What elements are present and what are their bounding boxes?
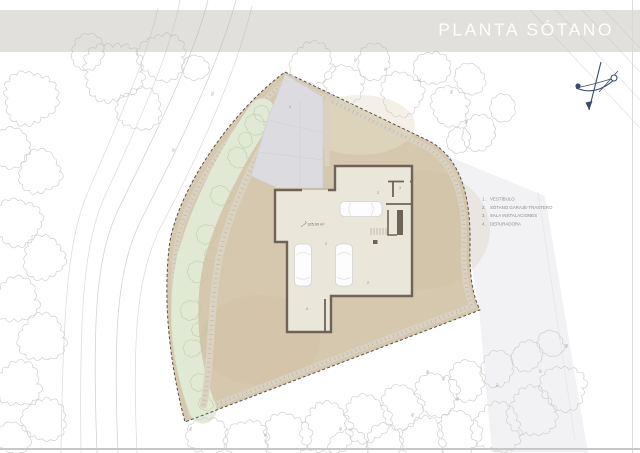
elevation-label: 86 — [410, 412, 415, 417]
elevation-label: 93 — [210, 91, 215, 96]
legend-item-number: 2. — [482, 205, 486, 210]
room-number: 3 — [399, 186, 401, 190]
elevation-label: 86 — [425, 369, 430, 374]
area-label-text: 325.00 m² — [308, 223, 326, 227]
room-number: 2 — [367, 281, 369, 285]
legend-item-label: VESTÍBULO — [490, 197, 515, 202]
tree-icon — [23, 235, 66, 281]
column — [373, 240, 378, 244]
tree-icon — [0, 359, 43, 405]
elevation-label: 86 — [455, 396, 460, 401]
car — [295, 244, 312, 286]
legend-item-number: 1. — [482, 197, 486, 202]
tree-icon — [0, 126, 30, 169]
elevation-label: 85 — [338, 426, 343, 431]
tree-icon — [462, 114, 496, 152]
room-number: 1 — [289, 105, 291, 109]
tree-icon — [489, 94, 515, 123]
sheet-bottom-edge — [0, 448, 640, 450]
legend-item-number: 3. — [482, 213, 486, 218]
legend-item-label: DEPURADORA — [490, 221, 521, 226]
car — [336, 244, 353, 286]
page-title: PLANTA SÓTANO — [438, 20, 614, 41]
elevation-label: 90 — [464, 119, 469, 124]
header-band: PLANTA SÓTANO — [0, 10, 640, 52]
tree-icon — [446, 127, 470, 153]
site-plan-canvas: 9291919090939284858586868686878788 — [0, 0, 640, 453]
tree-icon — [181, 55, 209, 81]
tree-icon — [449, 359, 486, 402]
room-number: 2 — [325, 242, 327, 246]
plan-sheet: 9291919090939284858586868686878788 — [0, 0, 640, 453]
tree-icon — [20, 397, 67, 441]
elevation-label: 91 — [383, 66, 388, 71]
elevation-label: 90 — [449, 89, 454, 94]
legend-item-label: SALA INSTALACIONES — [490, 213, 537, 218]
sheet-right-edge — [632, 0, 633, 453]
elevation-label: 86 — [441, 376, 446, 381]
elevation-label: 84 — [188, 426, 193, 431]
room-number: 2 — [377, 191, 379, 195]
tree-icon — [0, 198, 44, 248]
legend-item-number: 4. — [482, 221, 486, 226]
car — [340, 202, 382, 217]
legend-item-label: SÓTANO GARAJE-TRASTERO — [490, 205, 553, 210]
room-number: 4 — [306, 307, 308, 311]
tree-icon — [19, 148, 64, 194]
tree-icon — [414, 373, 460, 418]
tree-icon — [115, 86, 162, 130]
tree-icon — [3, 71, 59, 127]
